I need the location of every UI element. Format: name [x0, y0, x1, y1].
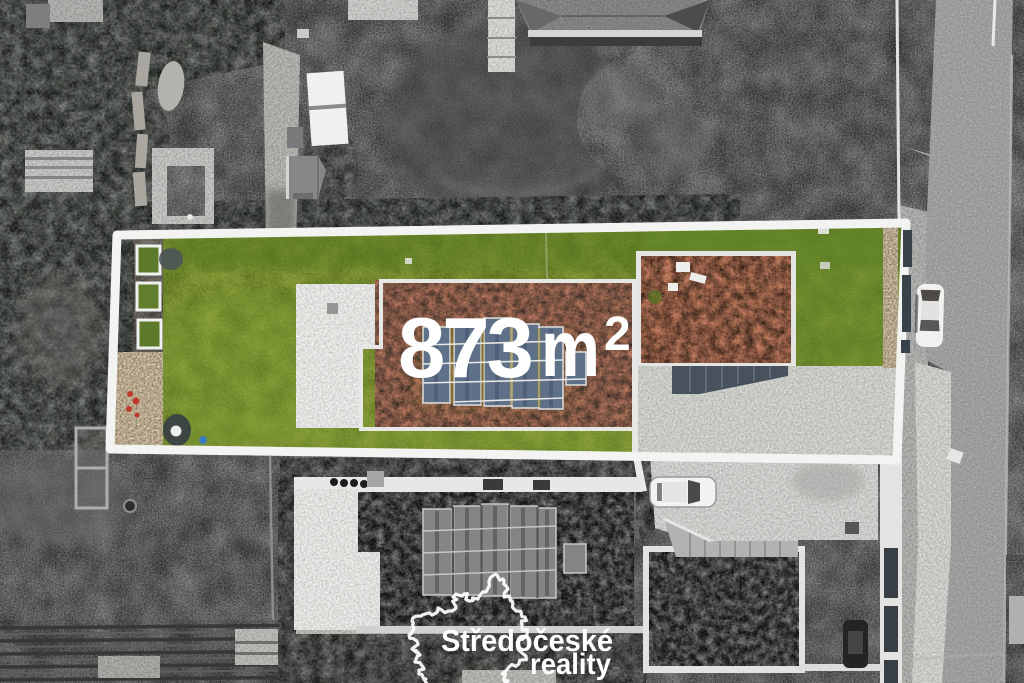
svg-text:2: 2: [604, 308, 631, 361]
svg-text:reality: reality: [530, 648, 611, 681]
svg-text:873: 873: [398, 301, 532, 396]
svg-text:m: m: [541, 304, 600, 393]
